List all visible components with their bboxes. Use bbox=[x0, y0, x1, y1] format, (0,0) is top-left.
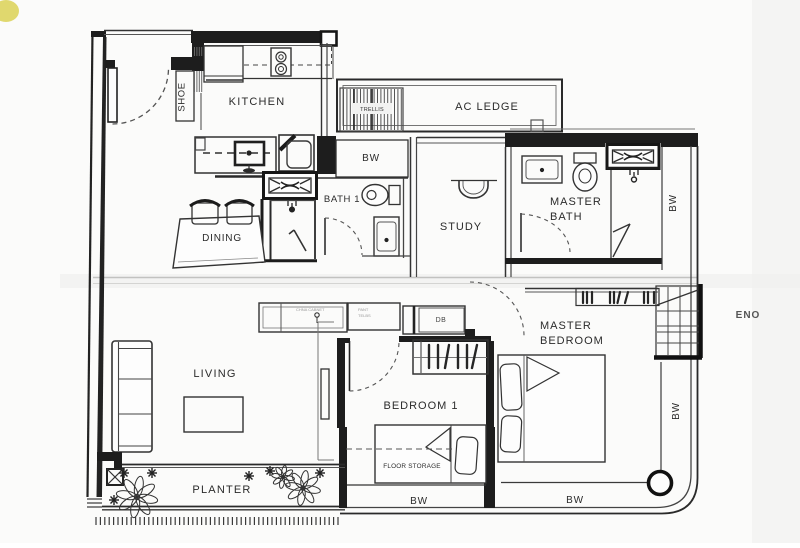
svg-text:PLANTER: PLANTER bbox=[192, 484, 251, 496]
svg-text:PANT: PANT bbox=[358, 307, 369, 312]
svg-text:DINING: DINING bbox=[202, 233, 242, 244]
svg-text:BW: BW bbox=[566, 495, 584, 506]
svg-text:BW: BW bbox=[362, 153, 380, 164]
svg-text:SHOE: SHOE bbox=[177, 82, 188, 111]
svg-text:TRELLIS: TRELLIS bbox=[360, 107, 384, 113]
svg-text:BW: BW bbox=[671, 402, 682, 420]
svg-text:CHNA CABNET: CHNA CABNET bbox=[296, 307, 325, 312]
svg-text:BATH: BATH bbox=[550, 211, 583, 223]
svg-text:BEDROOM: BEDROOM bbox=[540, 335, 604, 347]
svg-text:DB: DB bbox=[436, 317, 447, 324]
svg-text:LIVING: LIVING bbox=[193, 368, 236, 380]
svg-text:ENO: ENO bbox=[736, 310, 761, 321]
svg-text:BATH 1: BATH 1 bbox=[324, 194, 360, 205]
svg-text:STUDY: STUDY bbox=[440, 221, 482, 233]
svg-text:KITCHEN: KITCHEN bbox=[229, 96, 286, 108]
svg-text:TELBS: TELBS bbox=[358, 313, 371, 318]
svg-text:MASTER: MASTER bbox=[540, 320, 592, 332]
svg-text:AC LEDGE: AC LEDGE bbox=[455, 101, 519, 113]
svg-text:MASTER: MASTER bbox=[550, 196, 602, 208]
svg-text:BW: BW bbox=[410, 496, 428, 507]
svg-text:BEDROOM 1: BEDROOM 1 bbox=[383, 400, 458, 412]
svg-text:FLOOR STORAGE: FLOOR STORAGE bbox=[383, 463, 441, 470]
svg-text:BW: BW bbox=[668, 194, 679, 212]
